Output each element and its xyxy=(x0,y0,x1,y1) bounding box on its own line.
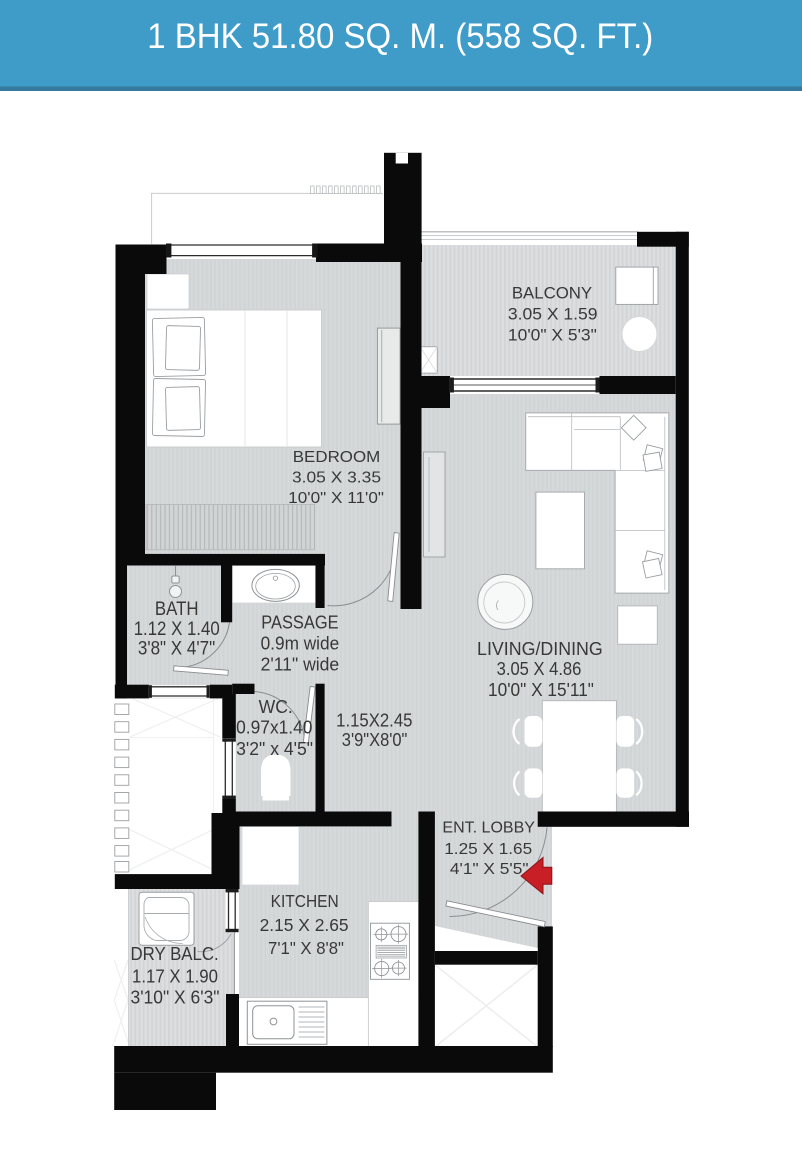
svg-text:ENT. LOBBY: ENT. LOBBY xyxy=(442,820,535,837)
svg-text:3'8" X 4'7": 3'8" X 4'7" xyxy=(138,639,215,660)
svg-text:1 BHK 51.80 SQ. M. (558 SQ. FT: 1 BHK 51.80 SQ. M. (558 SQ. FT.) xyxy=(147,17,653,56)
svg-text:2'11" wide: 2'11" wide xyxy=(261,655,340,675)
svg-text:4'1" X 5'5": 4'1" X 5'5" xyxy=(450,861,529,878)
svg-text:PASSAGE: PASSAGE xyxy=(261,613,338,633)
svg-text:1.12 X 1.40: 1.12 X 1.40 xyxy=(134,619,220,640)
svg-text:3.05 X 3.35: 3.05 X 3.35 xyxy=(292,470,381,487)
svg-text:BEDROOM: BEDROOM xyxy=(293,449,381,466)
svg-text:KITCHEN: KITCHEN xyxy=(271,891,339,911)
svg-text:1.17 X 1.90: 1.17 X 1.90 xyxy=(132,966,218,987)
svg-text:BALCONY: BALCONY xyxy=(512,284,592,302)
svg-text:7'1" X 8'8": 7'1" X 8'8" xyxy=(268,938,344,958)
svg-text:10'0" X 11'0": 10'0" X 11'0" xyxy=(288,490,384,507)
svg-text:3.05 X 1.59: 3.05 X 1.59 xyxy=(508,305,598,323)
svg-text:DRY BALC.: DRY BALC. xyxy=(130,943,218,964)
svg-text:1.25 X 1.65: 1.25 X 1.65 xyxy=(444,841,532,858)
svg-text:3.05 X 4.86: 3.05 X 4.86 xyxy=(497,659,582,679)
svg-text:10'0" X 5'3": 10'0" X 5'3" xyxy=(508,327,597,345)
svg-text:2.15 X 2.65: 2.15 X 2.65 xyxy=(260,915,349,935)
svg-text:3'2" x 4'5": 3'2" x 4'5" xyxy=(236,738,313,759)
svg-text:3'9"X8'0": 3'9"X8'0" xyxy=(342,729,408,750)
svg-text:10'0" X 15'11": 10'0" X 15'11" xyxy=(488,680,594,700)
svg-text:WC.: WC. xyxy=(259,696,293,717)
svg-text:LIVING/DINING: LIVING/DINING xyxy=(477,639,603,659)
svg-text:3'10" X 6'3": 3'10" X 6'3" xyxy=(131,987,220,1008)
svg-text:0.9m wide: 0.9m wide xyxy=(261,633,340,653)
svg-text:BATH: BATH xyxy=(155,599,199,620)
svg-text:1.15X2.45: 1.15X2.45 xyxy=(336,709,412,730)
svg-text:0.97x1.40: 0.97x1.40 xyxy=(236,717,312,738)
